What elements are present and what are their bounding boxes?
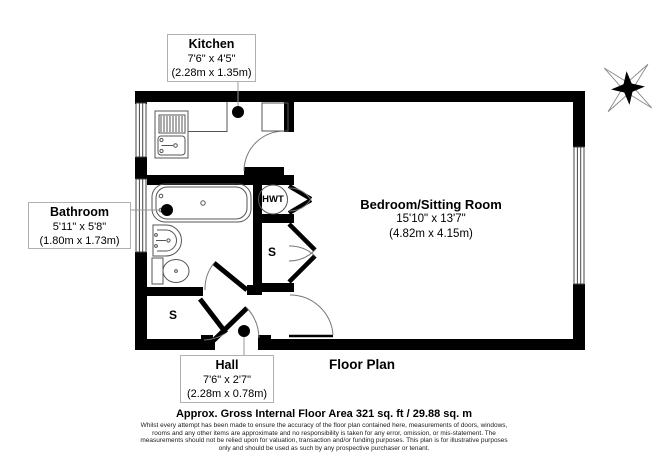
bedroom-imperial: 15'10" x 13'7": [331, 212, 531, 227]
bedroom-door: [289, 295, 333, 336]
bedroom-label: Bedroom/Sitting Room 15'10" x 13'7" (4.8…: [331, 195, 531, 242]
hwt-closet-doors: [289, 186, 311, 213]
bedroom-name: Bedroom/Sitting Room: [331, 197, 531, 212]
hall-imperial: 7'6" x 2'7": [181, 373, 273, 387]
kitchen-imperial: 7'6" x 4'5": [168, 52, 255, 66]
kitchen-door: [244, 131, 284, 175]
kitchen-label: Kitchen 7'6" x 4'5" (2.28m x 1.35m): [167, 34, 256, 82]
compass-rose-icon: [584, 44, 670, 131]
footer-disclaimer-line: rooms and any other items are approximat…: [0, 430, 648, 438]
bathroom-label: Bathroom 5'11" x 5'8" (1.80m x 1.73m): [28, 202, 131, 249]
kitchen-window: [136, 103, 146, 157]
hwt-label: HWT: [256, 194, 290, 205]
toilet: [152, 258, 189, 284]
bathroom-name: Bathroom: [29, 205, 130, 220]
bathroom-metric: (1.80m x 1.73m): [29, 234, 130, 248]
kitchen-metric: (2.28m x 1.35m): [168, 66, 255, 80]
footer-area-line: Approx. Gross Internal Floor Area 321 sq…: [0, 408, 648, 421]
bathroom-window: [136, 179, 146, 252]
windows: [136, 103, 584, 284]
doors: [200, 131, 333, 341]
bathroom-door: [205, 263, 247, 290]
footer-disclaimer-line: measurements should not be relied upon f…: [0, 437, 648, 445]
wash-basin: [153, 225, 181, 256]
hall-name: Hall: [181, 358, 273, 373]
footer-disclaimer-line: only and should be used as such by any p…: [0, 445, 648, 453]
footer: Approx. Gross Internal Floor Area 321 sq…: [0, 408, 648, 452]
kitchen-counter: [188, 102, 227, 132]
storage-middle-doors: [289, 224, 315, 282]
footer-disclaimer-line: Whilst every attempt has been made to en…: [0, 422, 648, 430]
bathroom-label-dot: [161, 204, 173, 216]
storage-middle-label: S: [262, 245, 282, 259]
floor-plan-title: Floor Plan: [329, 357, 395, 372]
bedroom-window: [574, 147, 584, 284]
hall-label: Hall 7'6" x 2'7" (2.28m x 0.78m): [180, 355, 274, 403]
floor-plan-page: Kitchen 7'6" x 4'5" (2.28m x 1.35m) Bath…: [0, 0, 670, 473]
hall-metric: (2.28m x 0.78m): [181, 387, 273, 401]
hall-label-dot: [238, 325, 250, 337]
kitchen-sink: [155, 111, 188, 158]
bathtub: [152, 184, 251, 222]
kitchen-fixtures: [155, 102, 288, 158]
bathroom-imperial: 5'11" x 5'8": [29, 220, 130, 234]
storage-bottom-label: S: [163, 308, 183, 322]
label-connectors: [129, 80, 250, 355]
kitchen-name: Kitchen: [168, 37, 255, 52]
bedroom-metric: (4.82m x 4.15m): [331, 227, 531, 242]
kitchen-label-dot: [232, 106, 244, 118]
